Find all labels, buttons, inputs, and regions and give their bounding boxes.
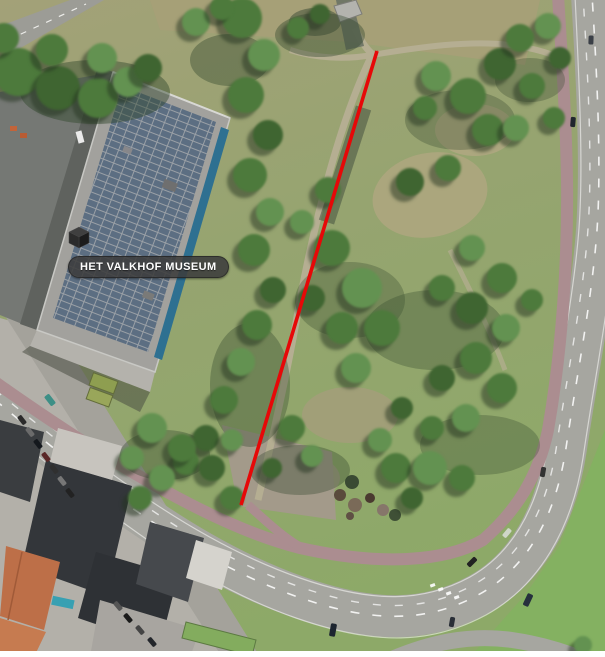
tree [472, 114, 504, 146]
rubble [334, 489, 346, 501]
tree [168, 434, 196, 462]
tree [310, 4, 330, 24]
tree [449, 465, 475, 491]
tree [137, 413, 167, 443]
tree [221, 429, 243, 451]
tree [413, 451, 447, 485]
rubble [348, 498, 362, 512]
tree [368, 428, 392, 452]
tree [260, 277, 286, 303]
tree [279, 415, 305, 441]
tree [341, 353, 371, 383]
tree [193, 425, 219, 451]
tree [182, 8, 210, 36]
tree [420, 416, 444, 440]
tree [36, 34, 68, 66]
tree [543, 107, 565, 129]
tree [435, 155, 461, 181]
shrub [389, 509, 401, 521]
tree [134, 54, 162, 82]
tree [128, 486, 152, 510]
orange-object [10, 126, 17, 131]
tree [506, 24, 534, 52]
tree [460, 342, 492, 374]
tree [487, 263, 517, 293]
tree [210, 386, 238, 414]
car [588, 35, 593, 44]
orange-object [20, 133, 27, 138]
tree [342, 268, 382, 308]
tree [429, 365, 455, 391]
tree [87, 43, 117, 73]
rubble [365, 493, 375, 503]
tree [287, 17, 309, 39]
tree [364, 310, 400, 346]
tree [459, 235, 485, 261]
page-margin [0, 651, 605, 657]
tree [484, 48, 516, 80]
tree [521, 289, 543, 311]
map-canvas [0, 0, 605, 657]
tree [413, 96, 437, 120]
tree [535, 13, 561, 39]
tree [262, 458, 282, 478]
tree [253, 120, 283, 150]
tree [421, 61, 451, 91]
tree [301, 445, 323, 467]
tree [450, 78, 486, 114]
tree [456, 292, 488, 324]
tree [242, 310, 272, 340]
tree [36, 66, 80, 110]
tree [452, 404, 480, 432]
tree [149, 465, 175, 491]
tree [238, 234, 270, 266]
tree [381, 453, 411, 483]
tree [120, 446, 144, 470]
car [570, 117, 576, 127]
aerial-map[interactable]: HET VALKHOF MUSEUM [0, 0, 605, 657]
museum-label[interactable]: HET VALKHOF MUSEUM [68, 256, 229, 278]
tree [78, 78, 118, 118]
tree [503, 115, 529, 141]
tree [492, 314, 520, 342]
tree [199, 455, 225, 481]
tree [256, 198, 284, 226]
tree [429, 275, 455, 301]
tree [487, 373, 517, 403]
tree [549, 47, 571, 69]
tree [248, 39, 280, 71]
isometric-cube-icon [68, 226, 90, 250]
rubble [346, 512, 354, 520]
tree [227, 348, 255, 376]
tree [233, 158, 267, 192]
tree [228, 77, 264, 113]
rubble [377, 504, 389, 516]
tree [290, 210, 314, 234]
tree [519, 73, 545, 99]
tree [401, 487, 423, 509]
tree [220, 486, 244, 510]
tree [326, 312, 358, 344]
tree [391, 397, 413, 419]
tree [396, 168, 424, 196]
